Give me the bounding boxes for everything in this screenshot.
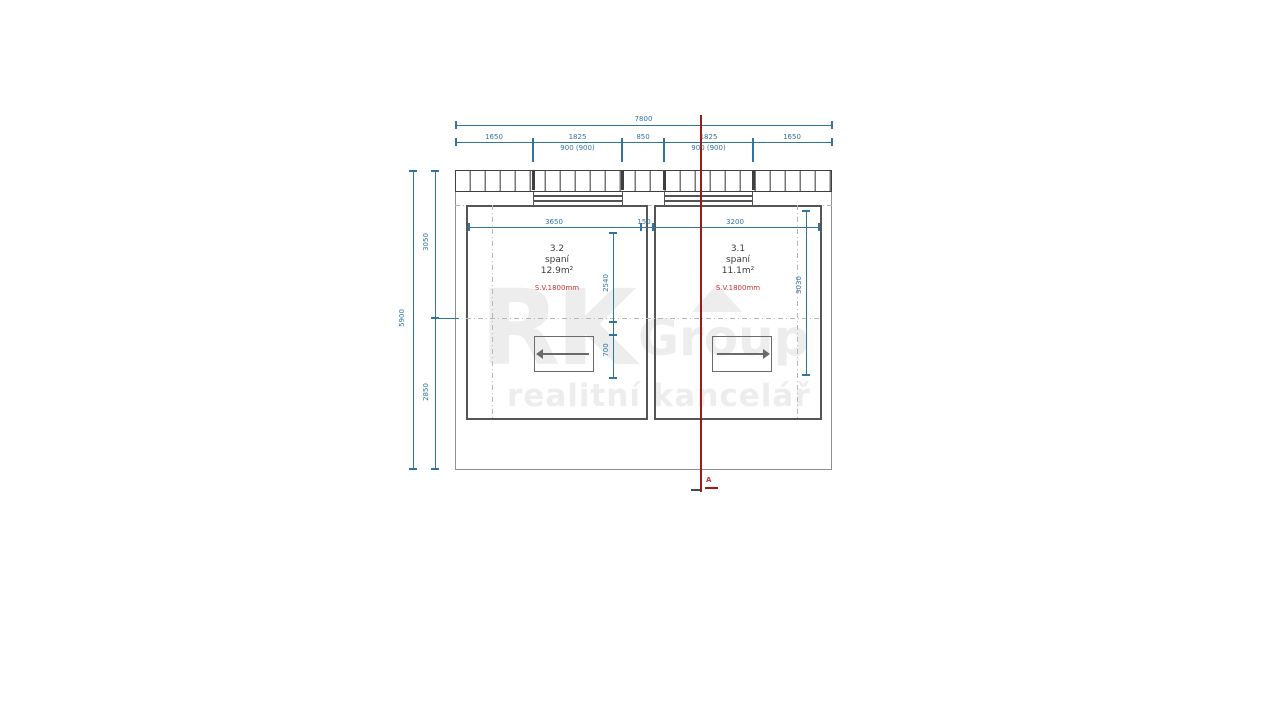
skylight-opening-line xyxy=(717,353,765,355)
window-glazing-line xyxy=(534,200,622,202)
window-size-label-left: 900 (900) xyxy=(533,144,622,152)
dimension-tick xyxy=(609,232,617,234)
section-label-underline xyxy=(705,487,718,489)
wall-segment-mark xyxy=(532,171,535,190)
window-size-label-right: 900 (900) xyxy=(664,144,753,152)
dimension-line-left-total xyxy=(413,170,414,470)
dimension-tick xyxy=(431,170,439,172)
dimension-label-left-total: 5900 xyxy=(397,298,407,338)
wall-segment-mark xyxy=(752,171,755,190)
section-end-tick xyxy=(691,489,700,491)
arrow-right-icon xyxy=(763,349,770,359)
room-label-block-right: 3.1 spaní 11.1m² S.V.1800mm xyxy=(654,244,822,293)
room-clearance-height: S.V.1800mm xyxy=(466,284,648,293)
dimension-line-room-widths xyxy=(468,227,820,228)
window-glazing-line xyxy=(665,195,752,197)
dimension-label: 850 xyxy=(622,133,664,141)
dimension-tick xyxy=(609,377,617,379)
skylight-symbol-right xyxy=(712,336,772,372)
dimension-tick xyxy=(609,321,617,323)
dimension-label-room-right-width: 3200 xyxy=(652,218,818,226)
dimension-tick xyxy=(409,468,417,470)
top-wall-hatched-band xyxy=(455,170,832,192)
dimension-extension-line xyxy=(435,318,459,319)
dimension-label: 3050 xyxy=(421,222,431,262)
room-number: 3.1 xyxy=(654,244,822,255)
dimension-tick xyxy=(431,468,439,470)
section-cut-line xyxy=(700,115,702,492)
floorplan-canvas: RK Group realitní kancelář 7800 1650 182… xyxy=(0,0,1280,720)
roof-break-dashline-vertical-right xyxy=(797,205,798,420)
dimension-label: 1650 xyxy=(455,133,533,141)
ceiling-height-dashline xyxy=(466,318,822,319)
dimension-label: 700 xyxy=(601,330,611,370)
dimension-tick xyxy=(409,170,417,172)
dimension-tick xyxy=(802,210,810,212)
room-clearance-height: S.V.1800mm xyxy=(654,284,822,293)
dimension-label: 2850 xyxy=(421,372,431,412)
room-area: 11.1m² xyxy=(654,266,822,277)
section-label: A xyxy=(706,476,711,484)
room-use: spaní xyxy=(654,255,822,266)
dimension-line-top-total xyxy=(455,125,832,126)
room-use: spaní xyxy=(466,255,648,266)
room-outline-left xyxy=(466,205,648,420)
dimension-label-top-total: 7800 xyxy=(455,115,832,123)
window-bay-right xyxy=(664,192,753,205)
window-glazing-line xyxy=(534,195,622,197)
roof-break-dashline-vertical-left xyxy=(492,205,493,420)
skylight-symbol-left xyxy=(534,336,594,372)
room-label-block-left: 3.2 spaní 12.9m² S.V.1800mm xyxy=(466,244,648,293)
dimension-label-room-left-width: 3650 xyxy=(468,218,640,226)
arrow-left-icon xyxy=(536,349,543,359)
room-area: 12.9m² xyxy=(466,266,648,277)
dimension-line-left-segments xyxy=(435,170,436,470)
window-glazing-line xyxy=(665,200,752,202)
dimension-line-top-segments xyxy=(455,142,832,143)
skylight-opening-line xyxy=(541,353,589,355)
dimension-tick xyxy=(831,138,833,146)
room-number: 3.2 xyxy=(466,244,648,255)
dimension-label: 1825 xyxy=(664,133,753,141)
wall-segment-mark xyxy=(663,171,666,190)
dimension-tick xyxy=(802,374,810,376)
dimension-label: 1650 xyxy=(753,133,831,141)
dimension-label: 1825 xyxy=(533,133,622,141)
dimension-tick xyxy=(818,223,820,231)
wall-segment-mark xyxy=(621,171,624,190)
window-bay-left xyxy=(533,192,623,205)
